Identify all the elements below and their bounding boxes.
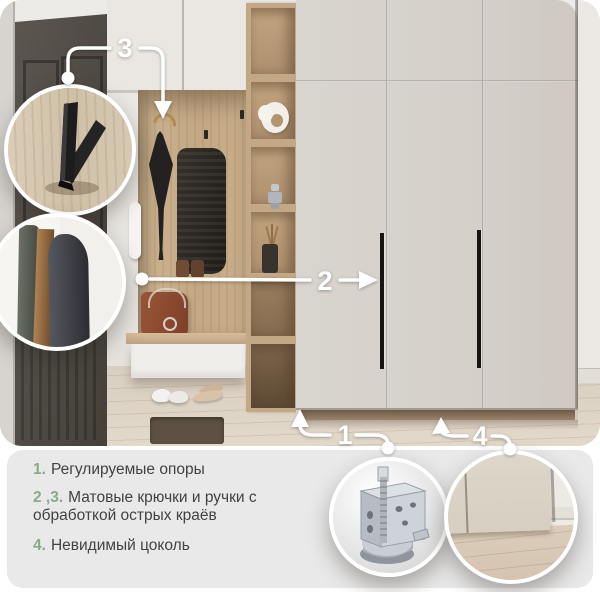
feature-item-1: 1.Регулируемые опоры <box>33 461 205 479</box>
sneaker <box>169 391 188 403</box>
adjustable-foot-icon <box>333 461 445 573</box>
coat-hook <box>204 130 208 139</box>
wardrobe-horizontal-seam <box>296 80 578 82</box>
handbag-medallion <box>163 317 177 331</box>
sneaker <box>152 389 171 402</box>
product-infographic: 1.Регулируемые опоры 2 ,3.Матовые крючки… <box>0 0 600 592</box>
reed-diffuser <box>262 244 278 273</box>
floor-texture <box>444 525 578 584</box>
boot <box>176 260 189 277</box>
floor-shadow <box>296 420 578 430</box>
robot-figurine <box>271 184 279 191</box>
wardrobe-door-seam <box>386 0 388 408</box>
shelf-cell <box>251 8 295 74</box>
hook-closeup-inset <box>4 84 136 216</box>
coat-hook <box>240 110 244 119</box>
feature-text: Матовые крючки и ручки с обработкой остр… <box>33 489 257 524</box>
bench-seat <box>126 333 250 344</box>
adjustable-foot-inset <box>329 457 449 577</box>
feature-number: 2 ,3. <box>33 489 63 506</box>
boot <box>191 260 204 277</box>
feature-text: Невидимый цоколь <box>51 537 190 554</box>
v-hook-icon <box>8 88 132 212</box>
handbag-strap <box>148 288 186 308</box>
wardrobe-handle <box>477 230 481 368</box>
wardrobe-door-seam <box>482 0 484 408</box>
recessed-plinth <box>299 410 575 420</box>
doormat <box>150 417 224 444</box>
plinth-closeup-inset <box>444 450 578 584</box>
baseboard <box>578 368 600 383</box>
handle-profile-front <box>48 234 91 351</box>
robot-figurine <box>271 203 279 209</box>
ring-vase-small <box>258 105 273 122</box>
shelf-cell <box>251 344 295 408</box>
wardrobe-side-edge <box>575 0 578 408</box>
feature-item-3: 4.Невидимый цоколь <box>33 537 190 555</box>
feature-number: 1. <box>33 461 46 478</box>
feature-text: Регулируемые опоры <box>51 461 205 478</box>
shelf-cell <box>251 281 295 336</box>
wardrobe-door-bottom <box>444 450 550 534</box>
coat <box>177 148 226 274</box>
right-wall <box>578 0 600 370</box>
bench-drawer <box>131 344 245 378</box>
feature-number: 4. <box>33 537 46 554</box>
feature-item-2: 2 ,3.Матовые крючки и ручки с обработкой… <box>33 489 333 525</box>
wardrobe-handle <box>380 233 384 369</box>
ring-vase-hole <box>271 114 283 127</box>
robot-figurine <box>268 192 282 203</box>
wardrobe <box>296 0 578 420</box>
overhead-cabinet <box>107 0 248 93</box>
